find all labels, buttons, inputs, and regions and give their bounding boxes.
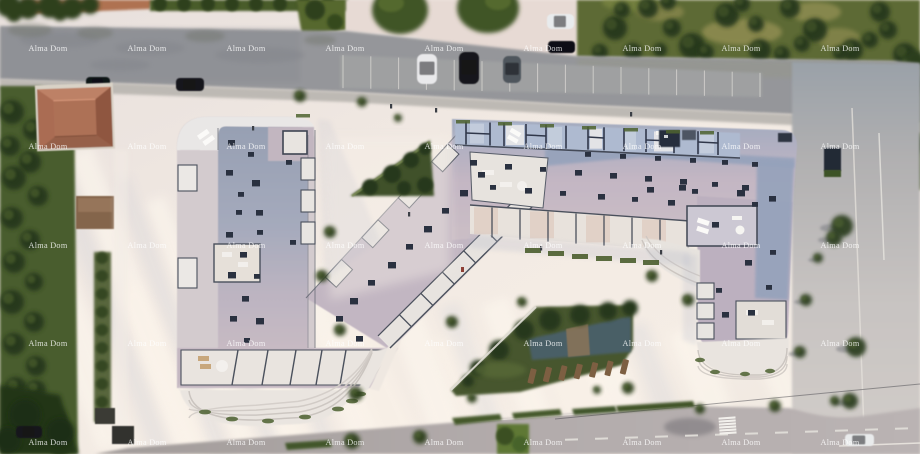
svg-text:Alma Dom: Alma Dom [721,44,760,53]
svg-text:Alma Dom: Alma Dom [28,438,67,447]
svg-text:Alma Dom: Alma Dom [622,438,661,447]
svg-text:Alma Dom: Alma Dom [325,339,364,348]
svg-text:Alma Dom: Alma Dom [721,438,760,447]
svg-text:Alma Dom: Alma Dom [622,241,661,250]
svg-text:Alma Dom: Alma Dom [622,142,661,151]
svg-text:Alma Dom: Alma Dom [622,339,661,348]
svg-text:Alma Dom: Alma Dom [424,44,463,53]
svg-text:Alma Dom: Alma Dom [523,44,562,53]
svg-text:Alma Dom: Alma Dom [325,241,364,250]
svg-text:Alma Dom: Alma Dom [622,44,661,53]
svg-text:Alma Dom: Alma Dom [424,339,463,348]
svg-text:Alma Dom: Alma Dom [820,142,859,151]
svg-text:Alma Dom: Alma Dom [424,142,463,151]
svg-text:Alma Dom: Alma Dom [523,142,562,151]
svg-text:Alma Dom: Alma Dom [721,339,760,348]
svg-text:Alma Dom: Alma Dom [226,44,265,53]
svg-text:Alma Dom: Alma Dom [127,44,166,53]
svg-text:Alma Dom: Alma Dom [721,241,760,250]
svg-text:Alma Dom: Alma Dom [28,241,67,250]
svg-text:Alma Dom: Alma Dom [226,142,265,151]
svg-text:Alma Dom: Alma Dom [226,339,265,348]
svg-text:Alma Dom: Alma Dom [523,339,562,348]
svg-text:Alma Dom: Alma Dom [28,339,67,348]
svg-text:Alma Dom: Alma Dom [28,142,67,151]
svg-text:Alma Dom: Alma Dom [820,438,859,447]
svg-text:Alma Dom: Alma Dom [325,438,364,447]
svg-text:Alma Dom: Alma Dom [523,241,562,250]
svg-text:Alma Dom: Alma Dom [127,339,166,348]
svg-text:Alma Dom: Alma Dom [325,44,364,53]
svg-text:Alma Dom: Alma Dom [325,142,364,151]
svg-text:Alma Dom: Alma Dom [127,241,166,250]
svg-text:Alma Dom: Alma Dom [28,44,67,53]
svg-text:Alma Dom: Alma Dom [820,339,859,348]
svg-text:Alma Dom: Alma Dom [424,241,463,250]
svg-text:Alma Dom: Alma Dom [424,438,463,447]
svg-text:Alma Dom: Alma Dom [820,241,859,250]
svg-text:Alma Dom: Alma Dom [226,241,265,250]
svg-text:Alma Dom: Alma Dom [820,44,859,53]
svg-text:Alma Dom: Alma Dom [127,438,166,447]
svg-text:Alma Dom: Alma Dom [127,142,166,151]
svg-text:Alma Dom: Alma Dom [226,438,265,447]
svg-text:Alma Dom: Alma Dom [721,142,760,151]
svg-text:Alma Dom: Alma Dom [523,438,562,447]
